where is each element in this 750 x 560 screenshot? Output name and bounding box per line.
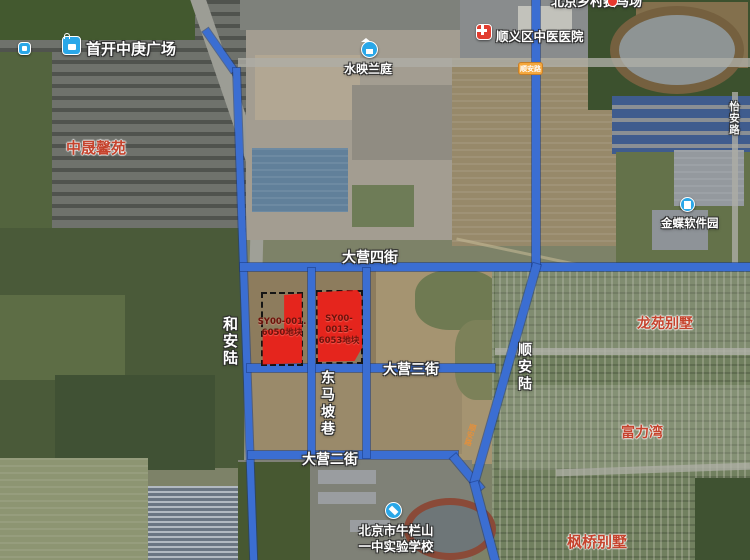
poi-label-school-line2: 一中实验学校 — [352, 539, 440, 555]
hospital-icon[interactable] — [476, 24, 492, 40]
road-label-yianlu: 怡安路 — [727, 101, 742, 136]
area-label-fuliwan[interactable]: 富力湾 — [621, 422, 663, 442]
parcel-label-6053: SY00-0013- 6053地块 — [314, 314, 364, 347]
parcel-label-6050-line1: SY00-001. — [256, 317, 308, 328]
terrain-construction-green — [352, 185, 414, 227]
residence-icon[interactable] — [361, 41, 378, 58]
terrain-grey-road-top — [238, 58, 750, 67]
terrain-vegetation-left-light — [0, 295, 125, 380]
area-label-fengqiao[interactable]: 枫桥别墅 — [567, 531, 627, 552]
poi-label-racecourse[interactable]: 北京乡村赛马场 — [551, 0, 642, 10]
road-label-dayingsijie: 大营四街 — [342, 247, 398, 267]
terrain-green-topband — [0, 0, 195, 40]
parcel-label-6053-line1: SY00-0013- — [314, 314, 364, 336]
poi-label-hospital[interactable]: 顺义区中医医院 — [496, 26, 584, 45]
parcel-label-6050: SY00-001. 6050地块 — [256, 317, 308, 339]
poi-label-school-line1: 北京市牛栏山 — [352, 523, 440, 539]
school-icon[interactable] — [385, 502, 402, 519]
road-label-heanlu: 和安陆 — [220, 316, 241, 367]
road-label-shunanlu: 顺安陆 — [514, 342, 534, 393]
road-dongmapoxiang — [308, 268, 315, 458]
office-icon[interactable] — [680, 197, 695, 212]
poi-label-shoukai[interactable]: 首开中庚广场 — [86, 38, 176, 59]
parcel-label-6053-line2: 6053地块 — [314, 336, 364, 347]
poi-label-school[interactable]: 北京市牛栏山 一中实验学校 — [352, 523, 440, 555]
cross-icon — [479, 27, 489, 37]
terrain-school-building-2 — [318, 492, 376, 504]
terrain-school-building-1 — [318, 470, 376, 484]
satellite-map-canvas[interactable]: SY00-001. 6050地块 SY00-0013- 6053地块 大营四街 … — [0, 0, 750, 560]
area-label-longyuan[interactable]: 龙苑别墅 — [637, 313, 693, 333]
terrain-construction-rubble — [352, 85, 460, 160]
road-label-dayingsanjie: 大营三街 — [383, 359, 439, 379]
poi-label-shuiying[interactable]: 水映兰庭 — [344, 60, 392, 77]
graduation-cap-icon — [389, 506, 399, 516]
poi-label-kingdee[interactable]: 金蝶软件园 — [661, 215, 719, 231]
poi-icon-unlabeled[interactable] — [18, 42, 31, 55]
terrain-green-leftstrip — [0, 52, 52, 237]
dot-icon — [22, 46, 27, 51]
road-field-vertical — [363, 268, 370, 458]
area-label-zhongsheng[interactable]: 中晟馨苑 — [66, 137, 126, 158]
terrain-racetrack-oval — [610, 6, 744, 94]
terrain-villa-woods — [695, 478, 750, 560]
terrain-urban-topmid — [240, 0, 470, 30]
shopping-bag-icon — [68, 44, 76, 50]
mall-icon[interactable] — [62, 36, 81, 55]
home-icon — [366, 49, 373, 54]
terrain-greenhouses — [148, 486, 242, 560]
road-label-dayingerjie: 大营二街 — [302, 449, 358, 469]
terrain-field-mid — [246, 372, 462, 454]
parcel-label-6050-line2: 6050地块 — [256, 328, 308, 339]
terrain-vegetation-left-dark — [55, 375, 215, 470]
road-label-dongmapoxiang: 东马坡巷 — [317, 370, 337, 438]
building-icon — [684, 201, 691, 209]
road-badge-shunanlu: 顺安路 — [518, 62, 543, 75]
terrain-construction-blue-structures — [252, 148, 348, 212]
road-dayingsijie — [240, 263, 750, 271]
terrain-field-bottomleft — [0, 458, 148, 560]
